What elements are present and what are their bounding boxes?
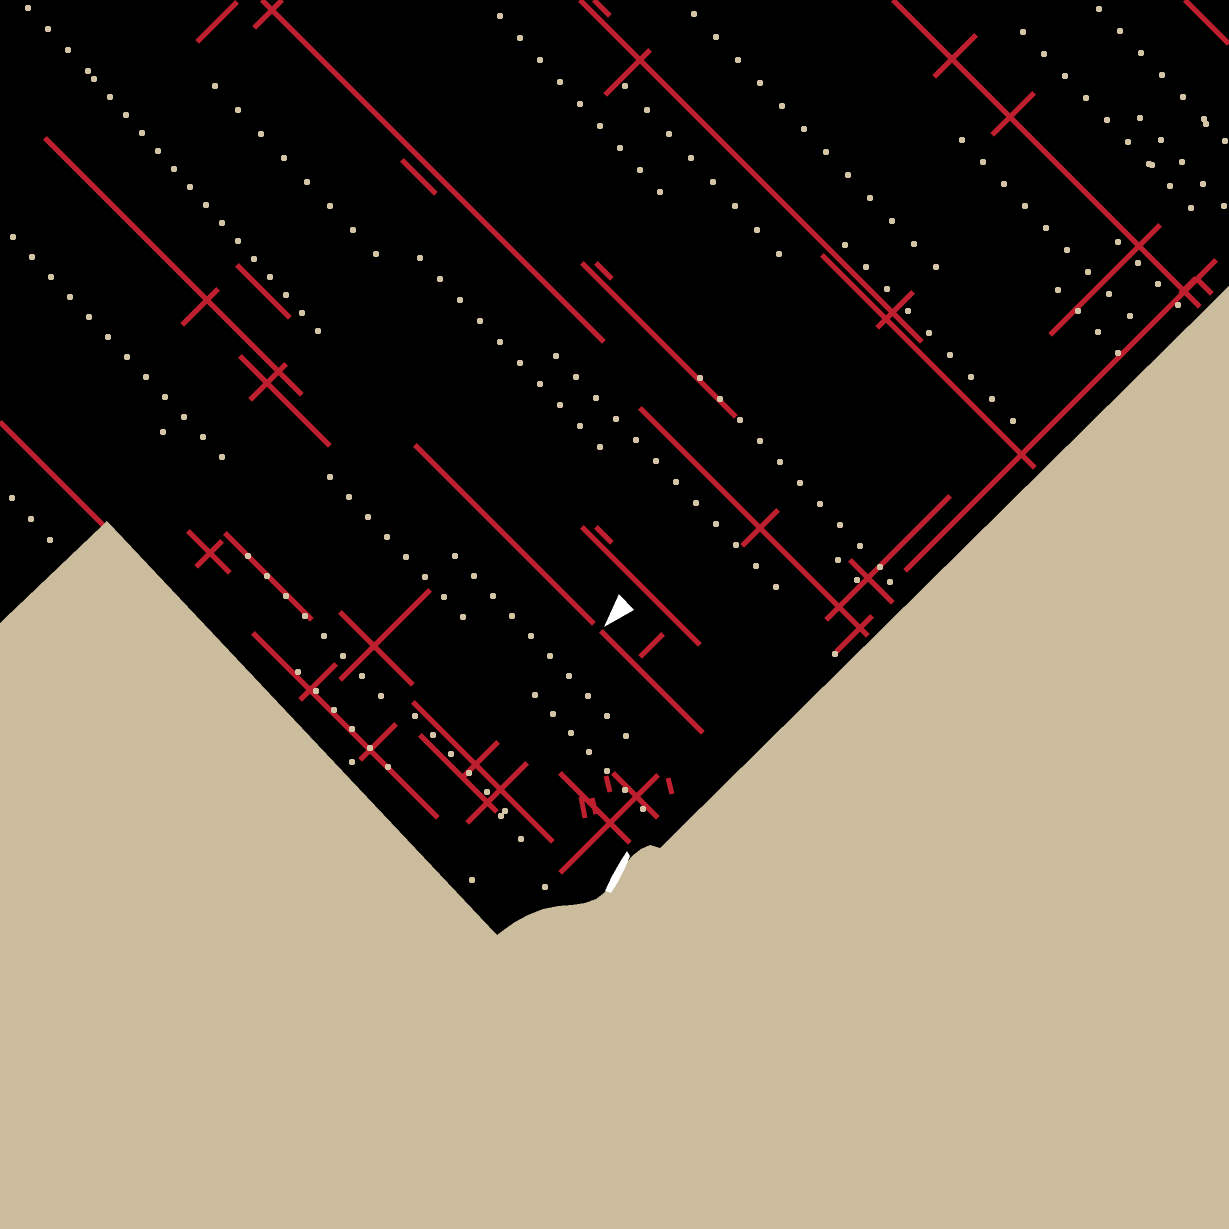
poi-dot [547, 653, 553, 659]
poi-dot [585, 693, 591, 699]
poi-dot [1125, 139, 1131, 145]
poi-dot [359, 673, 365, 679]
poi-dot [349, 759, 355, 765]
poi-dot [441, 594, 447, 600]
poi-dot [437, 276, 443, 282]
poi-dot [835, 557, 841, 563]
poi-dot [235, 107, 241, 113]
poi-dot [417, 255, 423, 261]
poi-dot [365, 514, 371, 520]
poi-dot [710, 179, 716, 185]
poi-dot [200, 434, 206, 440]
poi-dot [466, 770, 472, 776]
poi-dot [773, 584, 779, 590]
poi-dot [1180, 94, 1186, 100]
poi-dot [86, 314, 92, 320]
poi-dot [403, 554, 409, 560]
poi-dot [1010, 418, 1016, 424]
poi-dot [557, 79, 563, 85]
poi-dot [1001, 181, 1007, 187]
poi-dot [385, 764, 391, 770]
poi-dot [469, 877, 475, 883]
poi-dot [737, 417, 743, 423]
poi-dot [267, 274, 273, 280]
poi-dot [1167, 183, 1173, 189]
poi-dot [350, 227, 356, 233]
poi-dot [777, 459, 783, 465]
poi-dot [378, 693, 384, 699]
poi-dot [1221, 203, 1227, 209]
poi-dot [757, 80, 763, 86]
poi-dot [281, 155, 287, 161]
poi-dot [577, 101, 583, 107]
poi-dot [219, 220, 225, 226]
poi-dot [622, 787, 628, 793]
poi-dot [47, 537, 53, 543]
poi-dot [283, 593, 289, 599]
poi-dot [9, 495, 15, 501]
poi-dot [367, 745, 373, 751]
poi-dot [1155, 281, 1161, 287]
poi-dot [817, 501, 823, 507]
poi-dot [45, 26, 51, 32]
poi-dot [1179, 159, 1185, 165]
poi-dot [753, 563, 759, 569]
poi-dot [1137, 115, 1143, 121]
poi-dot [989, 396, 995, 402]
poi-dot [171, 166, 177, 172]
poi-dot [1135, 260, 1141, 266]
poi-dot [1085, 269, 1091, 275]
poi-dot [295, 669, 301, 675]
poi-dot [823, 149, 829, 155]
poi-dot [933, 264, 939, 270]
poi-dot [735, 57, 741, 63]
poi-dot [1075, 308, 1081, 314]
poi-dot [623, 733, 629, 739]
poi-dot [430, 732, 436, 738]
poi-dot [302, 613, 308, 619]
poi-dot [905, 308, 911, 314]
poi-dot [1117, 28, 1123, 34]
poi-dot [889, 218, 895, 224]
poi-dot [640, 806, 646, 812]
poi-dot [384, 534, 390, 540]
poi-dot [48, 274, 54, 280]
poi-dot [877, 564, 883, 570]
poi-dot [346, 494, 352, 500]
poi-dot [477, 318, 483, 324]
poi-dot [28, 516, 34, 522]
poi-dot [732, 203, 738, 209]
poi-dot [688, 155, 694, 161]
poi-dot [283, 292, 289, 298]
poi-dot [613, 416, 619, 422]
poi-dot [837, 522, 843, 528]
poi-dot [497, 13, 503, 19]
poi-dot [779, 103, 785, 109]
poi-dot [304, 179, 310, 185]
poi-dot [498, 813, 504, 819]
poi-dot [1096, 6, 1102, 12]
poi-dot [155, 148, 161, 154]
poi-dot [550, 711, 556, 717]
poi-dot [887, 579, 893, 585]
poi-dot [518, 836, 524, 842]
poi-dot [1043, 225, 1049, 231]
poi-dot [1062, 73, 1068, 79]
poi-dot [586, 749, 592, 755]
poi-dot [160, 429, 166, 435]
poi-dot [801, 126, 807, 132]
poi-dot [448, 751, 454, 757]
poi-dot [947, 352, 953, 358]
poi-dot [212, 83, 218, 89]
map-svg [0, 0, 1229, 1229]
poi-dot [1083, 95, 1089, 101]
poi-dot [776, 251, 782, 257]
poi-dot [1064, 247, 1070, 253]
poi-dot [713, 34, 719, 40]
poi-dot [673, 479, 679, 485]
poi-dot [1055, 287, 1061, 293]
poi-dot [327, 474, 333, 480]
poi-dot [1149, 162, 1155, 168]
poi-dot [85, 68, 91, 74]
poi-dot [143, 374, 149, 380]
poi-dot [577, 423, 583, 429]
poi-dot [349, 726, 355, 732]
poi-dot [91, 76, 97, 82]
poi-dot [633, 437, 639, 443]
poi-dot [557, 402, 563, 408]
poi-dot [452, 553, 458, 559]
poi-dot [123, 112, 129, 118]
poi-dot [460, 614, 466, 620]
poi-dot [340, 653, 346, 659]
poi-dot [968, 374, 974, 380]
poi-dot [622, 83, 628, 89]
poi-dot [422, 574, 428, 580]
poi-dot [1138, 50, 1144, 56]
poi-dot [1115, 239, 1121, 245]
poi-dot [497, 339, 503, 345]
poi-dot [25, 5, 31, 11]
poi-dot [733, 542, 739, 548]
poi-dot [593, 395, 599, 401]
poi-dot [884, 286, 890, 292]
poi-dot [691, 11, 697, 17]
poi-dot [532, 692, 538, 698]
poi-dot [857, 543, 863, 549]
poi-dot [509, 613, 515, 619]
poi-dot [315, 328, 321, 334]
poi-dot [863, 264, 869, 270]
poi-dot [517, 35, 523, 41]
poi-dot [484, 789, 490, 795]
poi-dot [1200, 181, 1206, 187]
poi-dot [331, 707, 337, 713]
poi-dot [1022, 203, 1028, 209]
poi-dot [666, 131, 672, 137]
poi-dot [597, 123, 603, 129]
poi-dot [754, 227, 760, 233]
poi-dot [842, 242, 848, 248]
poi-dot [490, 593, 496, 599]
poi-dot [604, 713, 610, 719]
poi-dot [597, 444, 603, 450]
poi-dot [162, 394, 168, 400]
poi-dot [1175, 302, 1181, 308]
poi-dot [1115, 350, 1121, 356]
poi-dot [299, 310, 305, 316]
poi-dot [264, 573, 270, 579]
poi-dot [693, 500, 699, 506]
poi-dot [867, 195, 873, 201]
poi-dot [105, 334, 111, 340]
poi-dot [604, 768, 610, 774]
poi-dot [107, 94, 113, 100]
poi-dot [644, 107, 650, 113]
poi-dot [457, 297, 463, 303]
poi-dot [1222, 138, 1228, 144]
poi-dot [713, 521, 719, 527]
poi-dot [181, 414, 187, 420]
poi-dot [537, 381, 543, 387]
poi-dot [911, 241, 917, 247]
poi-dot [637, 167, 643, 173]
poi-dot [757, 438, 763, 444]
poi-dot [1188, 205, 1194, 211]
poi-dot [568, 730, 574, 736]
poi-dot [1095, 329, 1101, 335]
poi-dot [139, 130, 145, 136]
poi-dot [1158, 137, 1164, 143]
poi-dot [657, 189, 663, 195]
poi-dot [258, 131, 264, 137]
poi-dot [566, 673, 572, 679]
poi-dot [1104, 117, 1110, 123]
poi-dot [327, 203, 333, 209]
poi-dot [187, 184, 193, 190]
poi-dot [67, 294, 73, 300]
poi-dot [471, 573, 477, 579]
poi-dot [980, 159, 986, 165]
poi-dot [29, 254, 35, 260]
map-viewport[interactable] [0, 0, 1229, 1229]
poi-dot [528, 633, 534, 639]
poi-dot [1106, 291, 1112, 297]
poi-dot [203, 202, 209, 208]
poi-dot [10, 234, 16, 240]
poi-dot [1020, 29, 1026, 35]
poi-dot [926, 330, 932, 336]
poi-dot [653, 458, 659, 464]
poi-dot [251, 256, 257, 262]
poi-dot [845, 172, 851, 178]
poi-dot [245, 553, 251, 559]
poi-dot [412, 713, 418, 719]
poi-dot [717, 396, 723, 402]
poi-dot [1041, 51, 1047, 57]
poi-dot [959, 137, 965, 143]
poi-dot [373, 251, 379, 257]
poi-dot [219, 454, 225, 460]
poi-dot [1203, 121, 1209, 127]
poi-dot [854, 577, 860, 583]
poi-dot [517, 360, 523, 366]
poi-dot [1159, 72, 1165, 78]
poi-dot [542, 884, 548, 890]
poi-dot [235, 238, 241, 244]
poi-dot [124, 354, 130, 360]
poi-dot [697, 375, 703, 381]
poi-dot [65, 47, 71, 53]
poi-dot [537, 57, 543, 63]
poi-dot [797, 480, 803, 486]
poi-dot [573, 374, 579, 380]
poi-dot [1127, 313, 1133, 319]
poi-dot [832, 651, 838, 657]
poi-dot [553, 353, 559, 359]
poi-dot [502, 808, 508, 814]
poi-dot [313, 688, 319, 694]
poi-dot [321, 633, 327, 639]
poi-dot [617, 145, 623, 151]
